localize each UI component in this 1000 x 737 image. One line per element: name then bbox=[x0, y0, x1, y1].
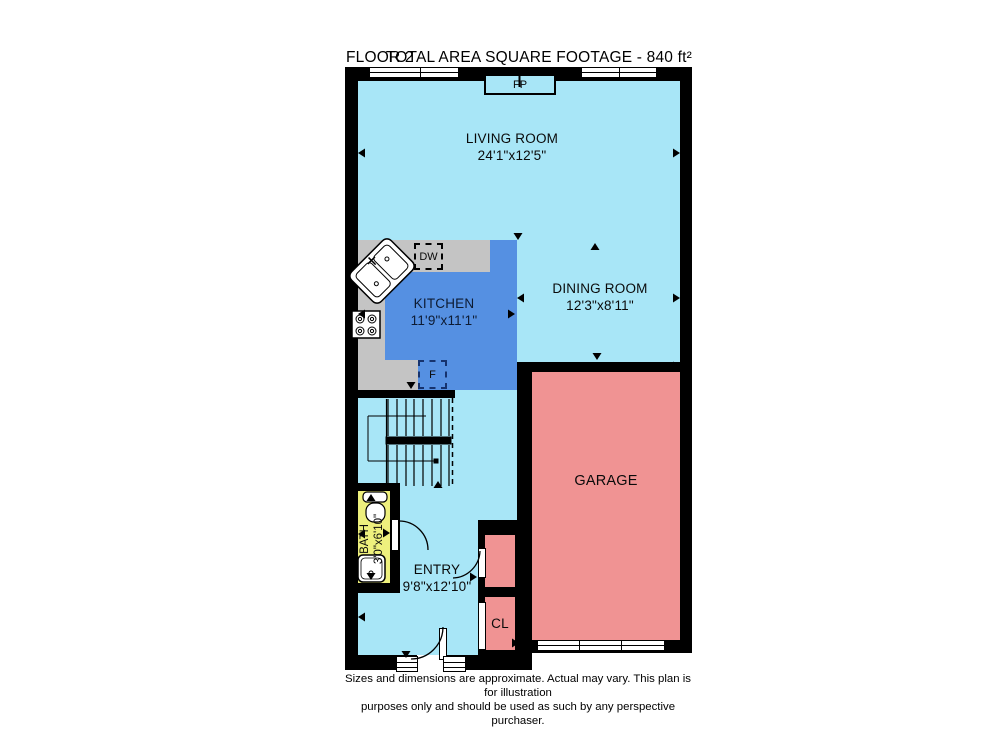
garage-door-icon bbox=[537, 640, 665, 651]
dishwasher-box: DW bbox=[414, 243, 443, 270]
closet-label: CL bbox=[480, 615, 520, 632]
garage-label: GARAGE bbox=[526, 473, 686, 490]
room-dims: 9'8"x12'10" bbox=[377, 578, 497, 595]
bath-door-jamb bbox=[391, 519, 399, 551]
kitchen-label: KITCHEN 11'9"x11'1" bbox=[384, 295, 504, 329]
dining-room-label: DINING ROOM 12'3"x8'11" bbox=[520, 280, 680, 314]
porch-steps-icon bbox=[443, 656, 466, 672]
room-name: GARAGE bbox=[526, 473, 686, 490]
fireplace-label: FP bbox=[513, 79, 527, 91]
furnace-box: F bbox=[418, 360, 447, 389]
living-room-label: LIVING ROOM 24'1"x12'5" bbox=[432, 130, 592, 164]
disclaimer-line2: purposes only and should be used as such… bbox=[338, 700, 698, 728]
room-name: KITCHEN bbox=[384, 295, 504, 312]
bath-label: BATH 3'0"x6'10" bbox=[358, 496, 388, 582]
dishwasher-label: DW bbox=[419, 251, 437, 263]
window-icon bbox=[581, 67, 657, 78]
fireplace-box: FP bbox=[484, 74, 556, 95]
room-dims: 12'3"x8'11" bbox=[520, 297, 680, 314]
room-name: CL bbox=[480, 615, 520, 632]
kitchen-counter-left bbox=[358, 272, 385, 390]
disclaimer: Sizes and dimensions are approximate. Ac… bbox=[338, 672, 698, 728]
floor-plan-page: FLOOR 2 TOTAL AREA SQUARE FOOTAGE - 840 … bbox=[0, 0, 1000, 737]
window-icon bbox=[369, 67, 459, 78]
room-name: DINING ROOM bbox=[520, 280, 680, 297]
kitchen-counter-bottom bbox=[385, 360, 418, 390]
room-dims: 24'1"x12'5" bbox=[432, 147, 592, 164]
disclaimer-line1: Sizes and dimensions are approximate. Ac… bbox=[338, 672, 698, 700]
room-dims: 11'9"x11'1" bbox=[384, 312, 504, 329]
room-name: BATH bbox=[358, 496, 372, 582]
entry-label: ENTRY 9'8"x12'10" bbox=[377, 561, 497, 595]
furnace-label: F bbox=[429, 369, 436, 381]
entry-opening bbox=[455, 390, 517, 398]
garage-wall-clear bbox=[532, 653, 692, 670]
porch-steps-icon bbox=[396, 656, 418, 672]
room-name: LIVING ROOM bbox=[432, 130, 592, 147]
room-name: ENTRY bbox=[377, 561, 497, 578]
room-dims: 3'0"x6'10" bbox=[372, 496, 386, 582]
total-area-title: TOTAL AREA SQUARE FOOTAGE - 840 ft² bbox=[345, 49, 692, 67]
room-garage bbox=[532, 372, 680, 640]
